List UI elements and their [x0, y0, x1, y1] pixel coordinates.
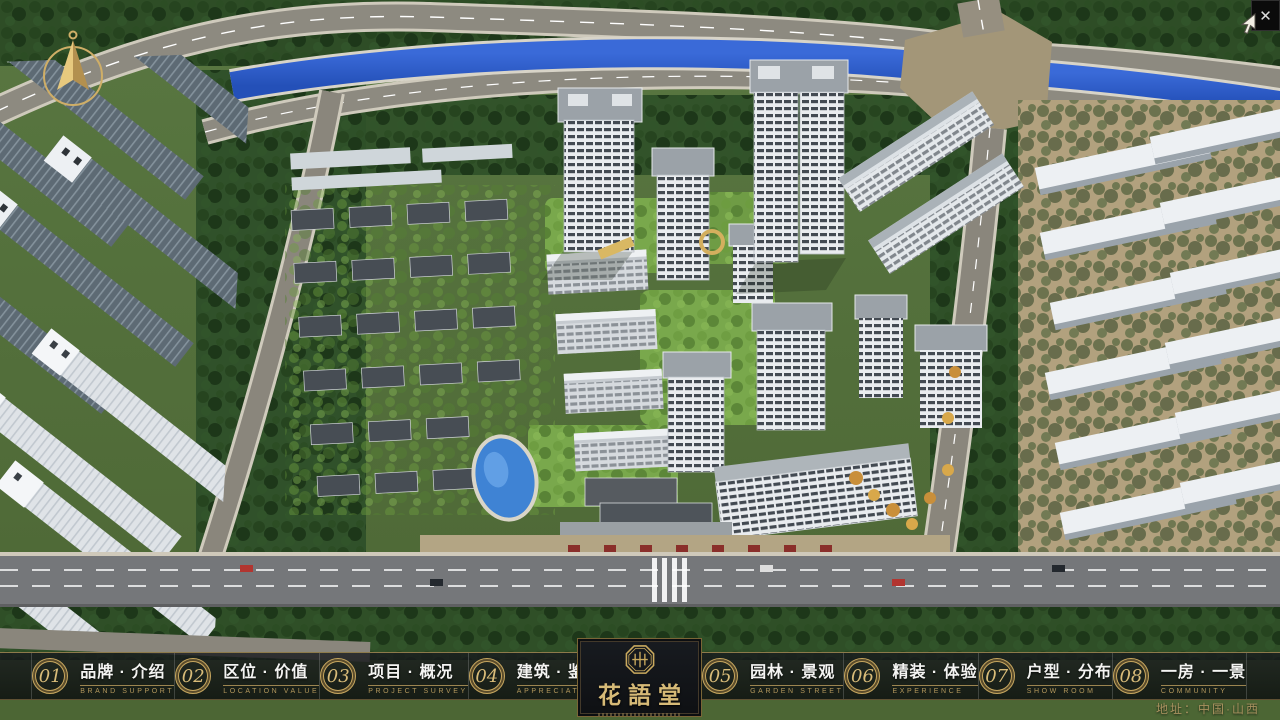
presentation-window: ✕ 01 品牌 · 介绍BRAND SUPPORT 02 区位 · 价值LOCA… — [0, 0, 1280, 720]
close-icon: ✕ — [1259, 7, 1272, 25]
nav-sublabel: EXPERIENCE — [892, 688, 963, 695]
nav-label: 区位 · 价值 — [223, 658, 308, 682]
compass-icon — [36, 18, 108, 114]
nav-item-one-room-one-view[interactable]: 08 一房 · 一景COMMUNITY — [1113, 653, 1246, 699]
nav-number-badge: 07 — [979, 658, 1015, 694]
gold-underline — [1161, 685, 1246, 686]
logo-tagline-line — [598, 713, 682, 716]
nav-item-project-survey[interactable]: 03 项目 · 概况PROJECT SURVEY — [320, 653, 469, 699]
nav-label: 户型 · 分布 — [1027, 658, 1112, 682]
nav-number-badge: 05 — [702, 658, 738, 694]
nav-label: 精装 · 体验 — [892, 658, 977, 682]
warehouse-blocks-right — [1018, 100, 1280, 568]
gold-underline — [368, 685, 468, 686]
gold-underline — [750, 685, 843, 686]
gold-underline — [892, 685, 977, 686]
nav-number-badge: 04 — [469, 658, 505, 694]
gold-underline — [80, 685, 174, 686]
nav-bar-right-stub — [1246, 653, 1280, 699]
nav-number-badge: 08 — [1113, 658, 1149, 694]
nav-sublabel: GARDEN STREET — [750, 688, 843, 695]
nav-label: 园林 · 景观 — [750, 658, 835, 682]
nav-number-badge: 01 — [32, 658, 68, 694]
logo-panel[interactable]: 花語堂 — [577, 638, 702, 717]
nav-item-decor-experience[interactable]: 06 精装 · 体验EXPERIENCE — [844, 653, 978, 699]
nav-sublabel: PROJECT SURVEY — [368, 688, 468, 695]
masterplan-aerial-render — [0, 0, 1280, 720]
nav-sublabel: LOCATION VALUE — [223, 688, 319, 695]
nav-number-badge: 02 — [175, 658, 211, 694]
address-text: 地址：中国·山西 — [1156, 700, 1260, 717]
nav-number-badge: 06 — [844, 658, 880, 694]
nav-item-brand-intro[interactable]: 01 品牌 · 介绍BRAND SUPPORT — [32, 653, 175, 699]
gold-underline — [223, 685, 319, 686]
nav-sublabel: BRAND SUPPORT — [80, 688, 174, 695]
nav-sublabel: COMMUNITY — [1161, 688, 1228, 695]
gold-underline — [1027, 685, 1112, 686]
nav-number-badge: 03 — [320, 658, 356, 694]
nav-item-location-value[interactable]: 02 区位 · 价值LOCATION VALUE — [175, 653, 320, 699]
nav-item-unit-distribution[interactable]: 07 户型 · 分布SHOW ROOM — [979, 653, 1113, 699]
octagonal-seal-icon — [624, 644, 656, 675]
nav-label: 一房 · 一景 — [1161, 658, 1246, 682]
project-name: 花語堂 — [598, 676, 688, 710]
nav-label: 项目 · 概况 — [368, 658, 453, 682]
mouse-cursor — [1233, 13, 1257, 39]
nav-sublabel: SHOW ROOM — [1027, 688, 1096, 695]
nav-label: 品牌 · 介绍 — [80, 658, 165, 682]
nav-item-garden-landscape[interactable]: 05 园林 · 景观GARDEN STREET — [702, 653, 844, 699]
nav-bar-left-stub — [0, 653, 32, 699]
